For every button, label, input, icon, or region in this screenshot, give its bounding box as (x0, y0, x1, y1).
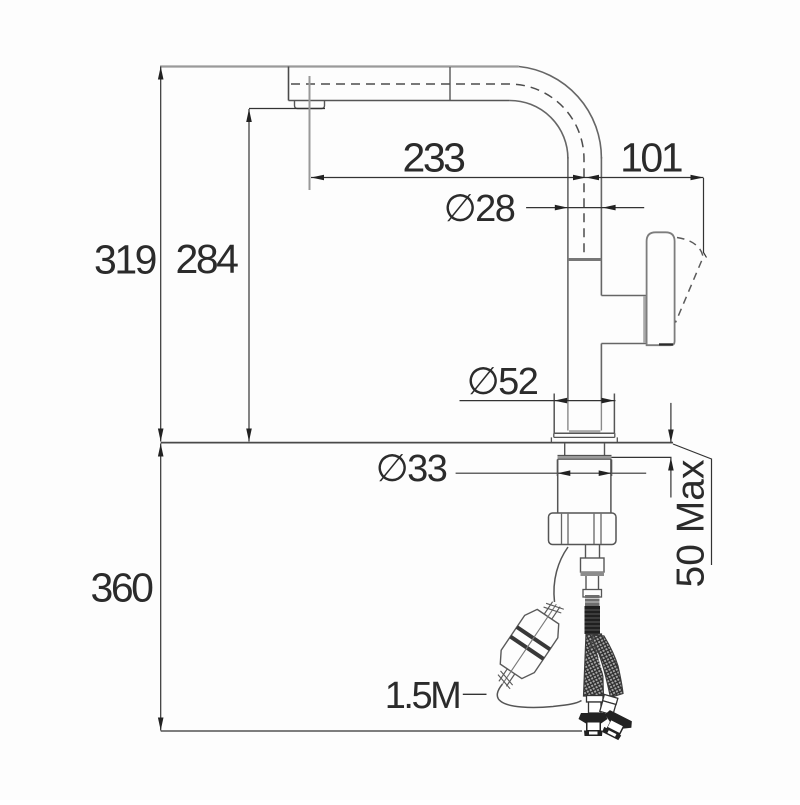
svg-text:284: 284 (176, 236, 239, 282)
svg-text:360: 360 (91, 565, 154, 611)
svg-text:233: 233 (403, 135, 465, 181)
svg-text:∅28: ∅28 (444, 188, 515, 230)
svg-text:∅52: ∅52 (467, 361, 538, 403)
svg-text:101: 101 (620, 135, 682, 181)
svg-text:1.5M: 1.5M (385, 675, 459, 717)
svg-text:∅33: ∅33 (376, 448, 447, 490)
svg-text:319: 319 (94, 237, 156, 283)
svg-text:50 Max: 50 Max (670, 459, 713, 587)
